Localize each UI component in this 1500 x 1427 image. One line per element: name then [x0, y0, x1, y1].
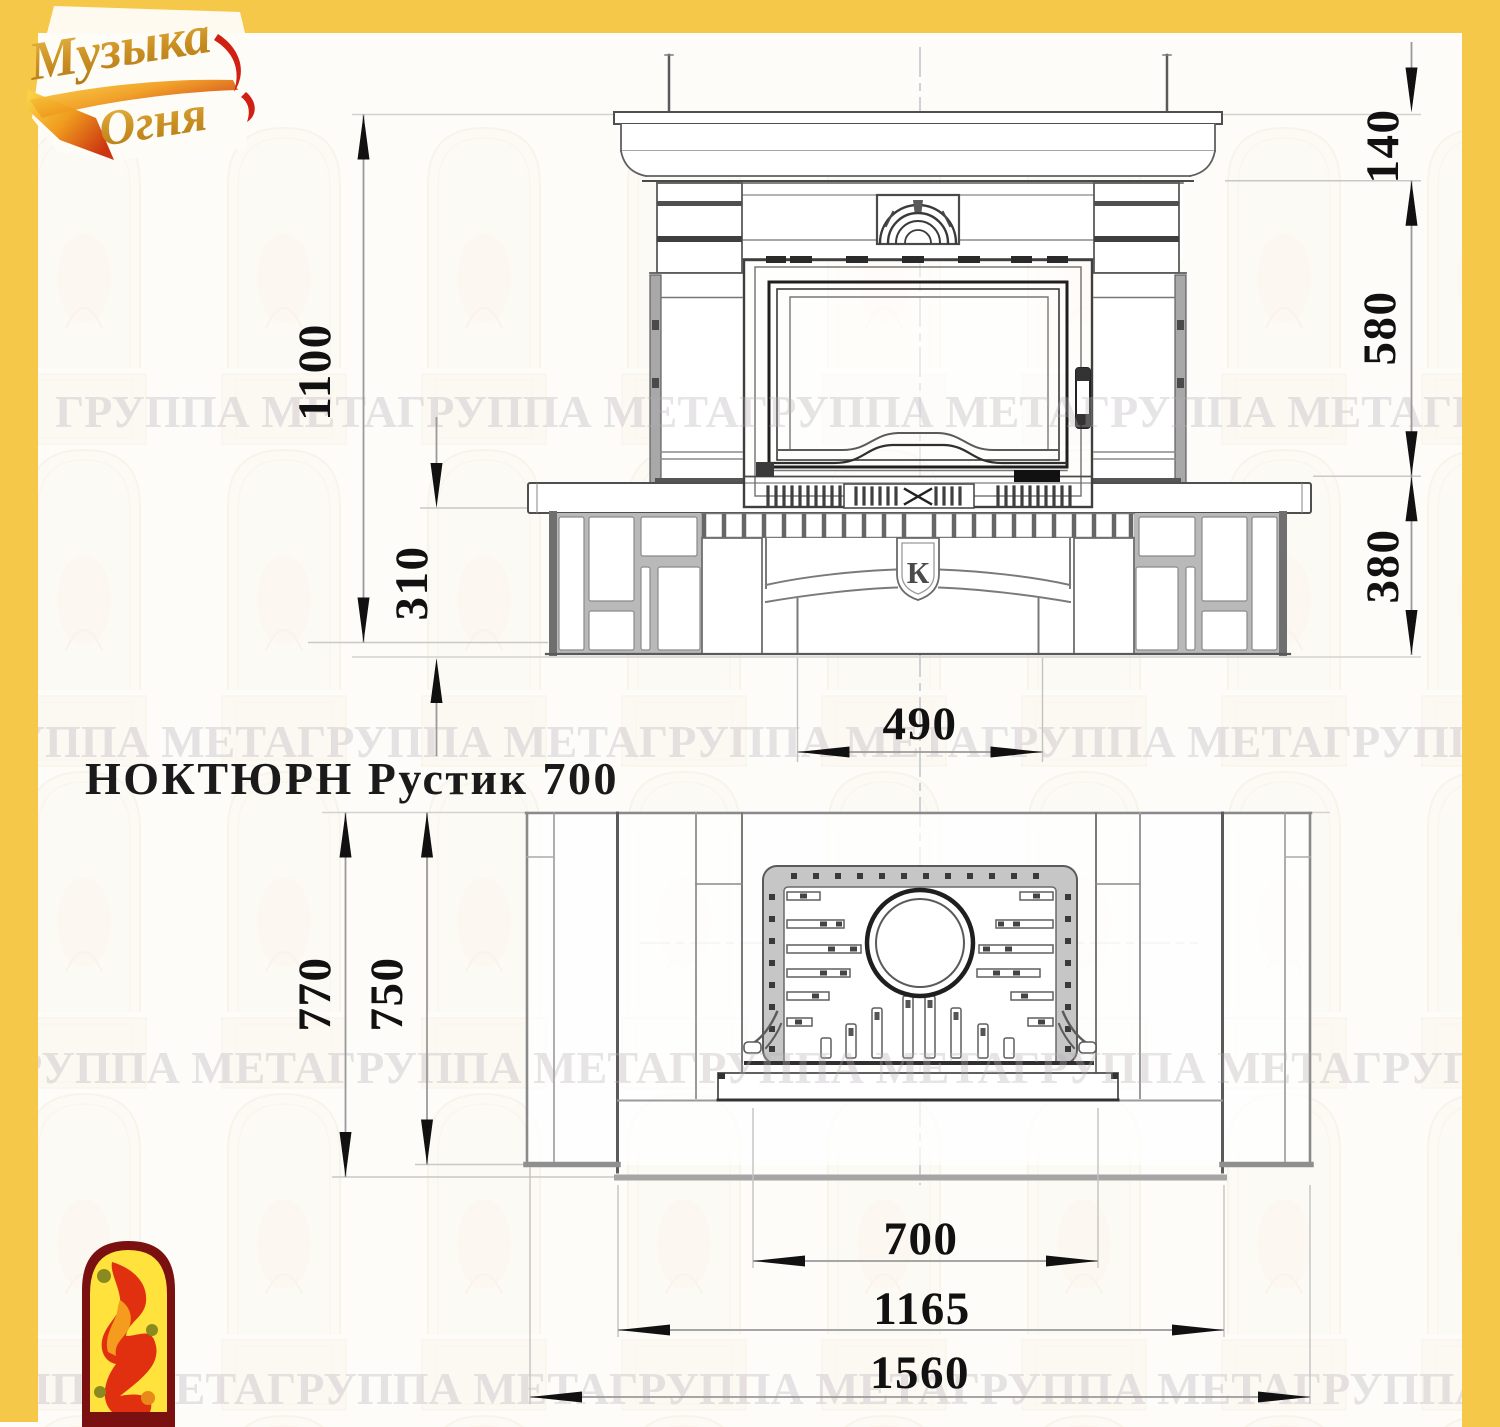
svg-text:ГРУППА МЕТАГРУППА МЕТАГРУППА М: ГРУППА МЕТАГРУППА МЕТАГРУППА МЕТАГРУППА …: [0, 1042, 1500, 1093]
svg-text:700: 700: [884, 1213, 959, 1265]
svg-text:1560: 1560: [870, 1347, 970, 1399]
svg-text:НОКТЮРН Рустик 700: НОКТЮРН Рустик 700: [85, 753, 619, 804]
svg-text:770: 770: [289, 957, 341, 1032]
svg-text:ГРУППА МЕТАГРУППА МЕТАГРУППА М: ГРУППА МЕТАГРУППА МЕТАГРУППА МЕТАГРУППА …: [0, 1363, 1500, 1414]
svg-text:140: 140: [1357, 109, 1409, 184]
svg-text:310: 310: [386, 546, 438, 621]
svg-text:750: 750: [361, 957, 413, 1032]
svg-text:К: К: [907, 555, 930, 590]
svg-text:490: 490: [883, 698, 958, 750]
svg-text:1100: 1100: [289, 323, 341, 420]
svg-text:1165: 1165: [873, 1283, 970, 1335]
svg-text:580: 580: [1354, 291, 1406, 366]
svg-text:380: 380: [1357, 529, 1409, 604]
svg-text:ГРУППА МЕТАГРУППА МЕТАГРУППА М: ГРУППА МЕТАГРУППА МЕТАГРУППА МЕТАГРУППА …: [55, 386, 1500, 437]
